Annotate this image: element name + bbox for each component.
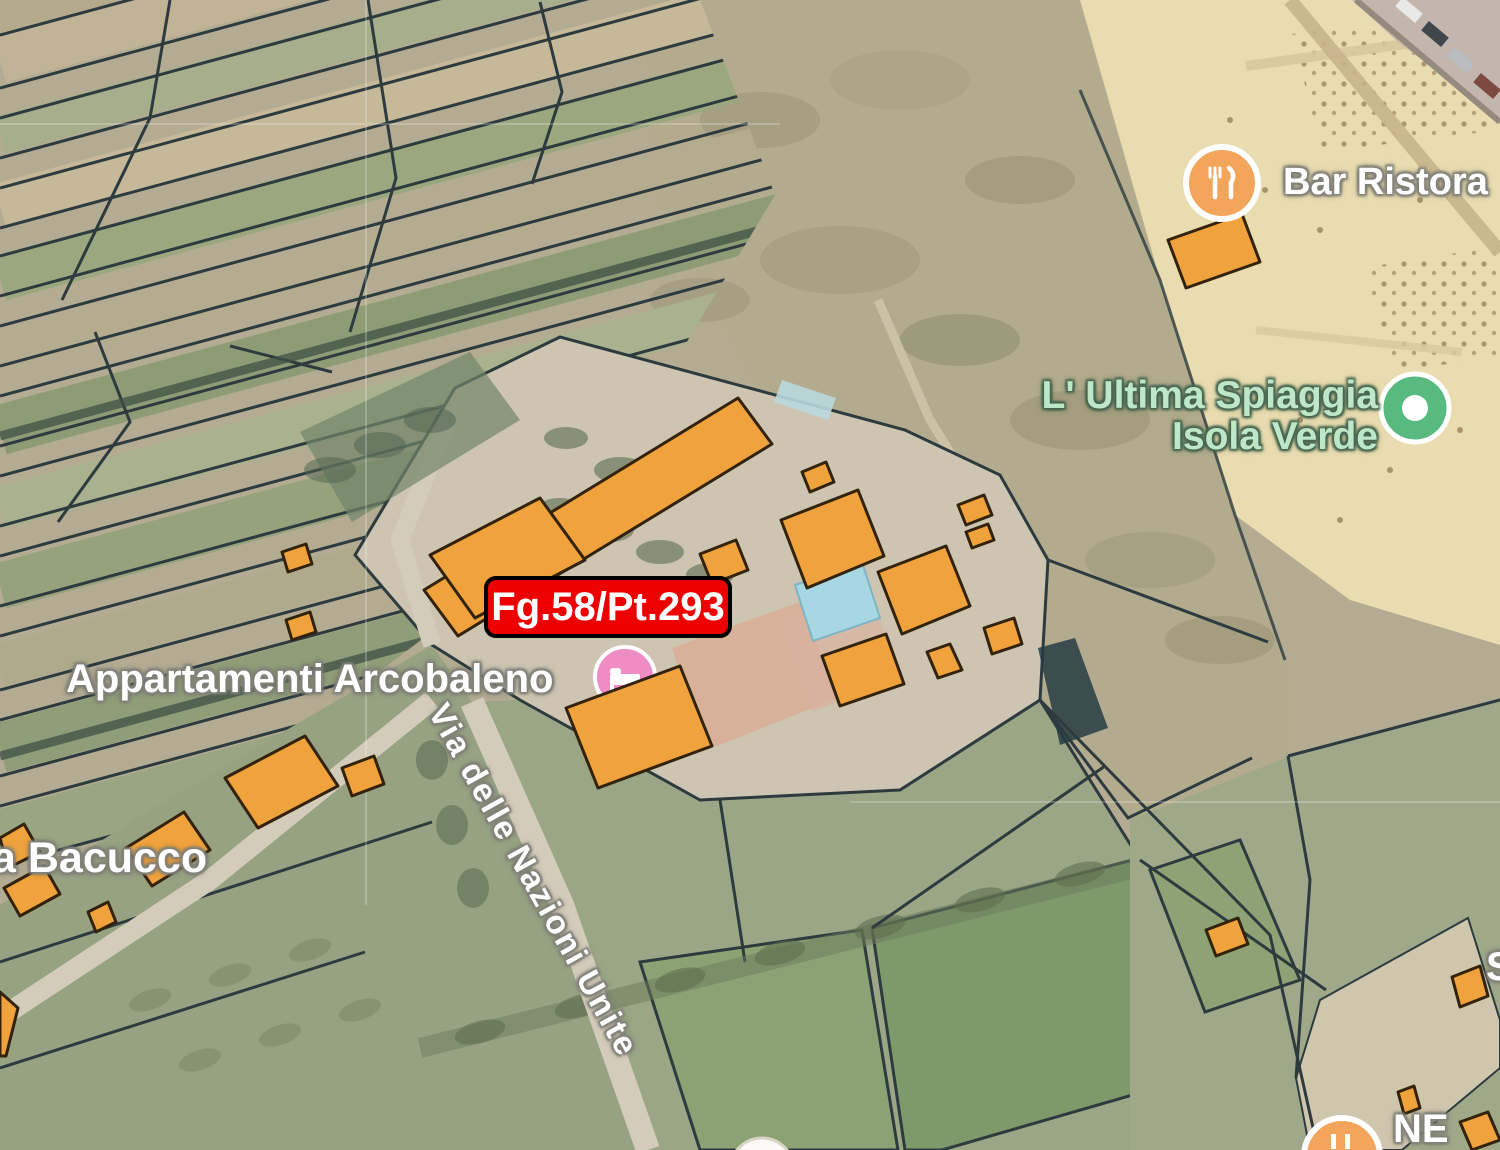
poi-label-ultima-spiaggia[interactable]: L' Ultima Spiaggia Isola Verde [1000, 376, 1378, 458]
poi-label-s-partial: S [1486, 946, 1500, 988]
poi-label-line2: Isola Verde [1000, 417, 1378, 458]
poi-label-ne-partial[interactable]: NE [1393, 1108, 1449, 1150]
green-dot-poi-icon[interactable] [1381, 374, 1449, 442]
street-label-via-bacucco: a Bacucco [0, 836, 207, 881]
restaurant-icon[interactable] [1186, 147, 1258, 219]
cadastral-parcel-badge: Fg.58/Pt.293 [484, 576, 732, 638]
poi-label-line1: L' Ultima Spiaggia [1000, 376, 1378, 417]
poi-label-bar-ristorante[interactable]: Bar Ristora [1283, 163, 1488, 203]
map-terrain [0, 0, 1500, 1150]
poi-label-appartamenti-arcobaleno[interactable]: Appartamenti Arcobaleno [66, 658, 553, 700]
cadastral-parcel-badge-text: Fg.58/Pt.293 [491, 585, 724, 630]
satellite-map-canvas[interactable]: Bar Ristora L' Ultima Spiaggia Isola Ver… [0, 0, 1500, 1150]
